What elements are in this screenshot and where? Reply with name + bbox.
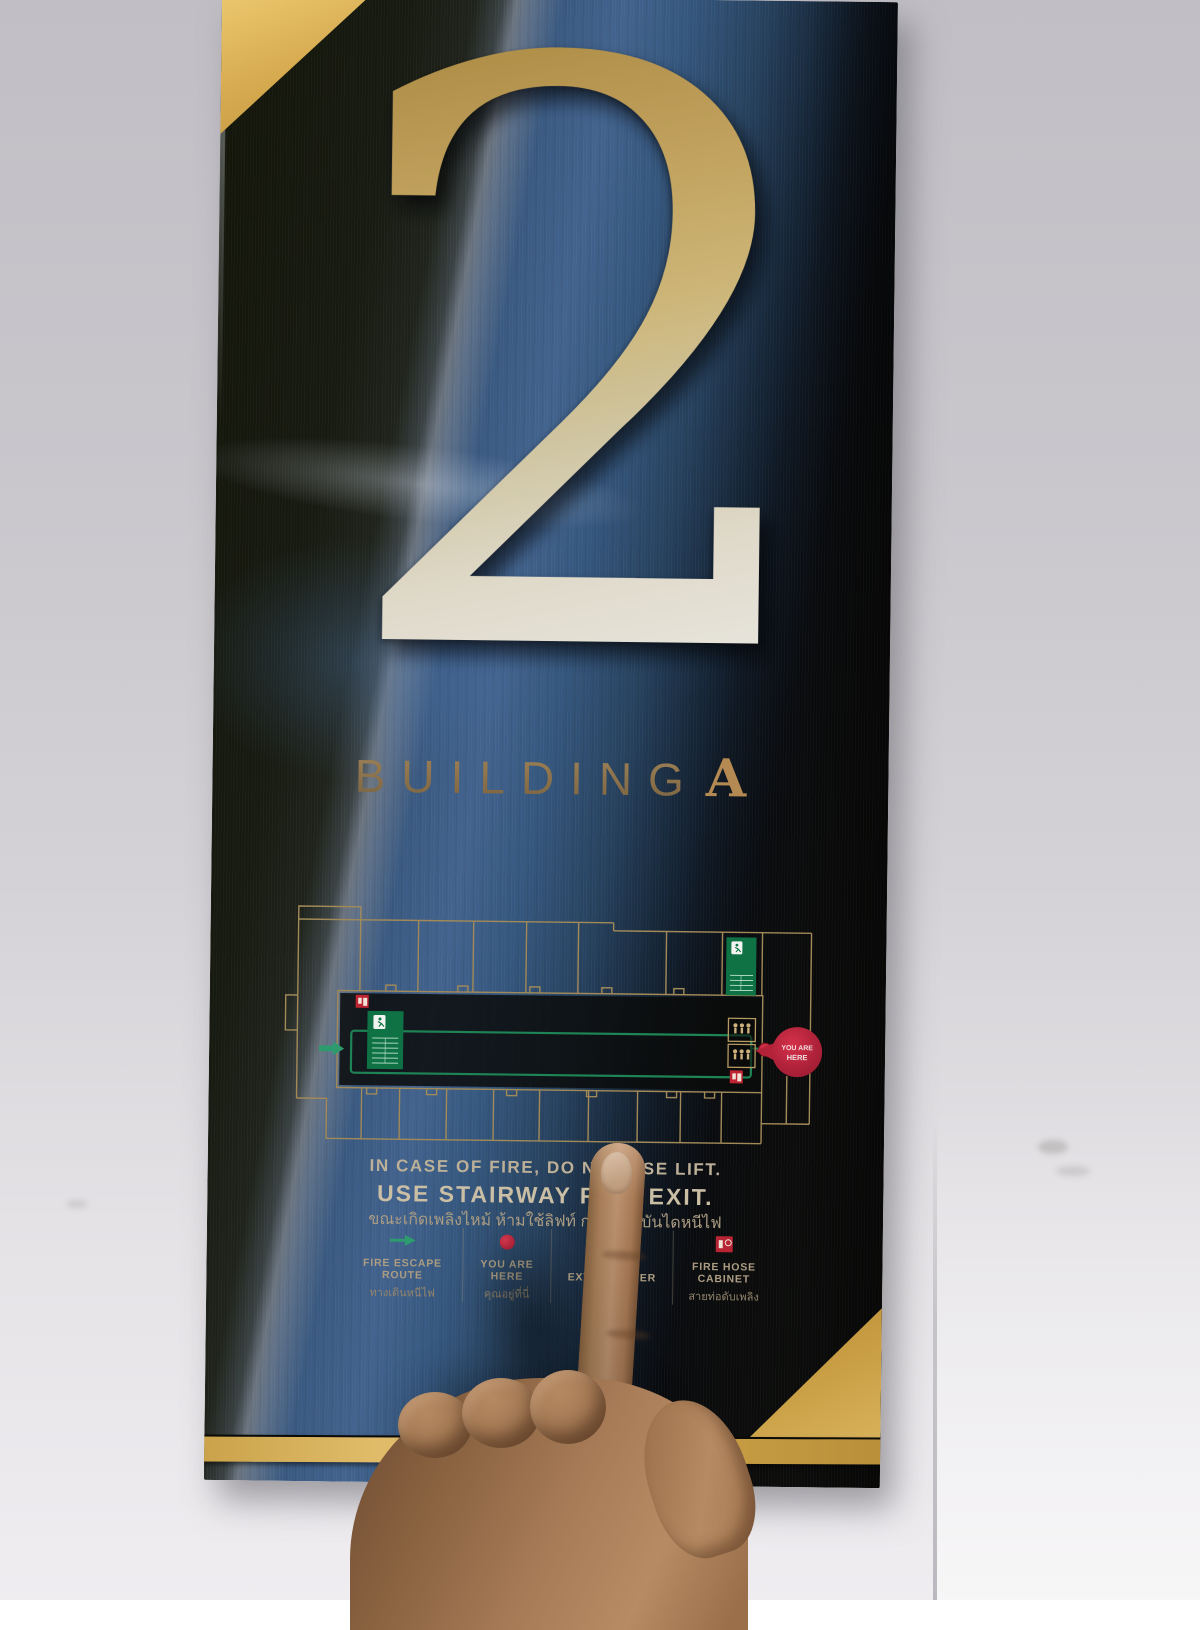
stairway-left (367, 1011, 404, 1069)
knuckle (398, 1392, 472, 1458)
fire-hose-cabinet-icon (678, 1231, 771, 1258)
you-are-here-text-1: YOU ARE (781, 1045, 813, 1052)
wall-smudge (1038, 1140, 1068, 1154)
you-are-here-balloon: YOU ARE HERE (755, 1027, 823, 1078)
legend-label-thai: ทางเดินหนีไฟ (346, 1283, 458, 1302)
knuckle (530, 1370, 606, 1444)
fingernail (600, 1151, 632, 1194)
fire-hose-cabinet-icon (356, 995, 369, 1008)
legend-fire-hose-cabinet: FIRE HOSE CABINET สายท่อดับเพลิง (672, 1231, 775, 1306)
you-are-here-text-2: HERE (787, 1053, 808, 1062)
wall-smudge (1056, 1166, 1090, 1176)
photo-scene: 2 BUILDING A (0, 0, 1200, 1600)
legend-label-thai: สายท่อดับเพลิง (677, 1287, 770, 1306)
building-letter: A (706, 748, 747, 809)
knuckle (462, 1378, 540, 1448)
floor-number: 2 (326, 0, 845, 768)
fire-hose-cabinet-icon (730, 1070, 743, 1083)
stairway-right (726, 937, 757, 995)
svg-text:YOU ARE: YOU ARE (781, 1045, 813, 1052)
floor-plan-map: YOU ARE HERE (266, 880, 829, 1147)
svg-text:HERE: HERE (787, 1053, 808, 1062)
legend-label: FIRE HOSE CABINET (677, 1261, 770, 1286)
building-title: BUILDING A (212, 742, 889, 811)
wall-smudge (66, 1200, 88, 1208)
building-word: BUILDING (354, 749, 700, 807)
